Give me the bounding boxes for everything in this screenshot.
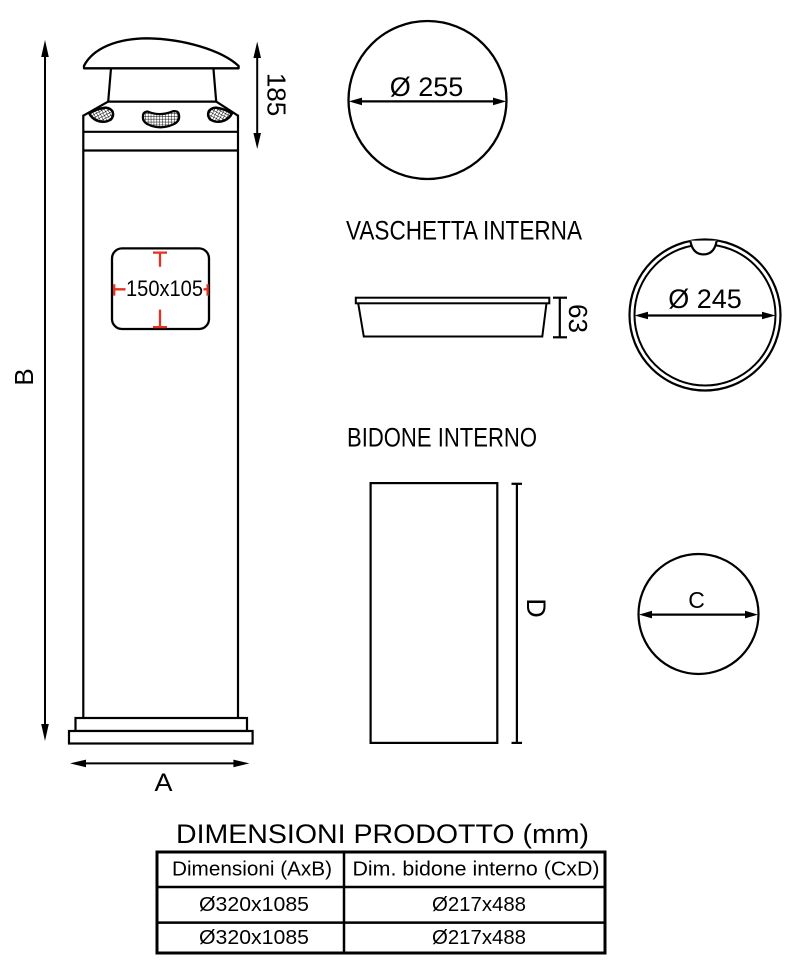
svg-text:A: A xyxy=(155,769,173,797)
svg-text:DIMENSIONI PRODOTTO (mm): DIMENSIONI PRODOTTO (mm) xyxy=(176,819,589,849)
svg-text:C: C xyxy=(688,587,705,613)
svg-text:Ø217x488: Ø217x488 xyxy=(432,927,526,949)
svg-text:BIDONE INTERNO: BIDONE INTERNO xyxy=(347,423,537,453)
svg-text:63: 63 xyxy=(563,304,593,333)
svg-text:Ø 245: Ø 245 xyxy=(668,284,742,314)
svg-text:Ø217x488: Ø217x488 xyxy=(432,894,526,916)
svg-text:D: D xyxy=(521,598,551,618)
svg-text:Dimensioni (AxB): Dimensioni (AxB) xyxy=(172,859,332,881)
svg-text:VASCHETTA INTERNA: VASCHETTA INTERNA xyxy=(346,216,582,246)
svg-text:150x105: 150x105 xyxy=(126,276,203,301)
svg-text:Ø 255: Ø 255 xyxy=(390,72,464,102)
svg-text:B: B xyxy=(9,368,39,385)
svg-text:Ø320x1085: Ø320x1085 xyxy=(199,894,309,916)
svg-text:Ø320x1085: Ø320x1085 xyxy=(199,927,309,949)
svg-text:185: 185 xyxy=(262,73,292,116)
svg-text:Dim. bidone interno (CxD): Dim. bidone interno (CxD) xyxy=(353,859,600,881)
